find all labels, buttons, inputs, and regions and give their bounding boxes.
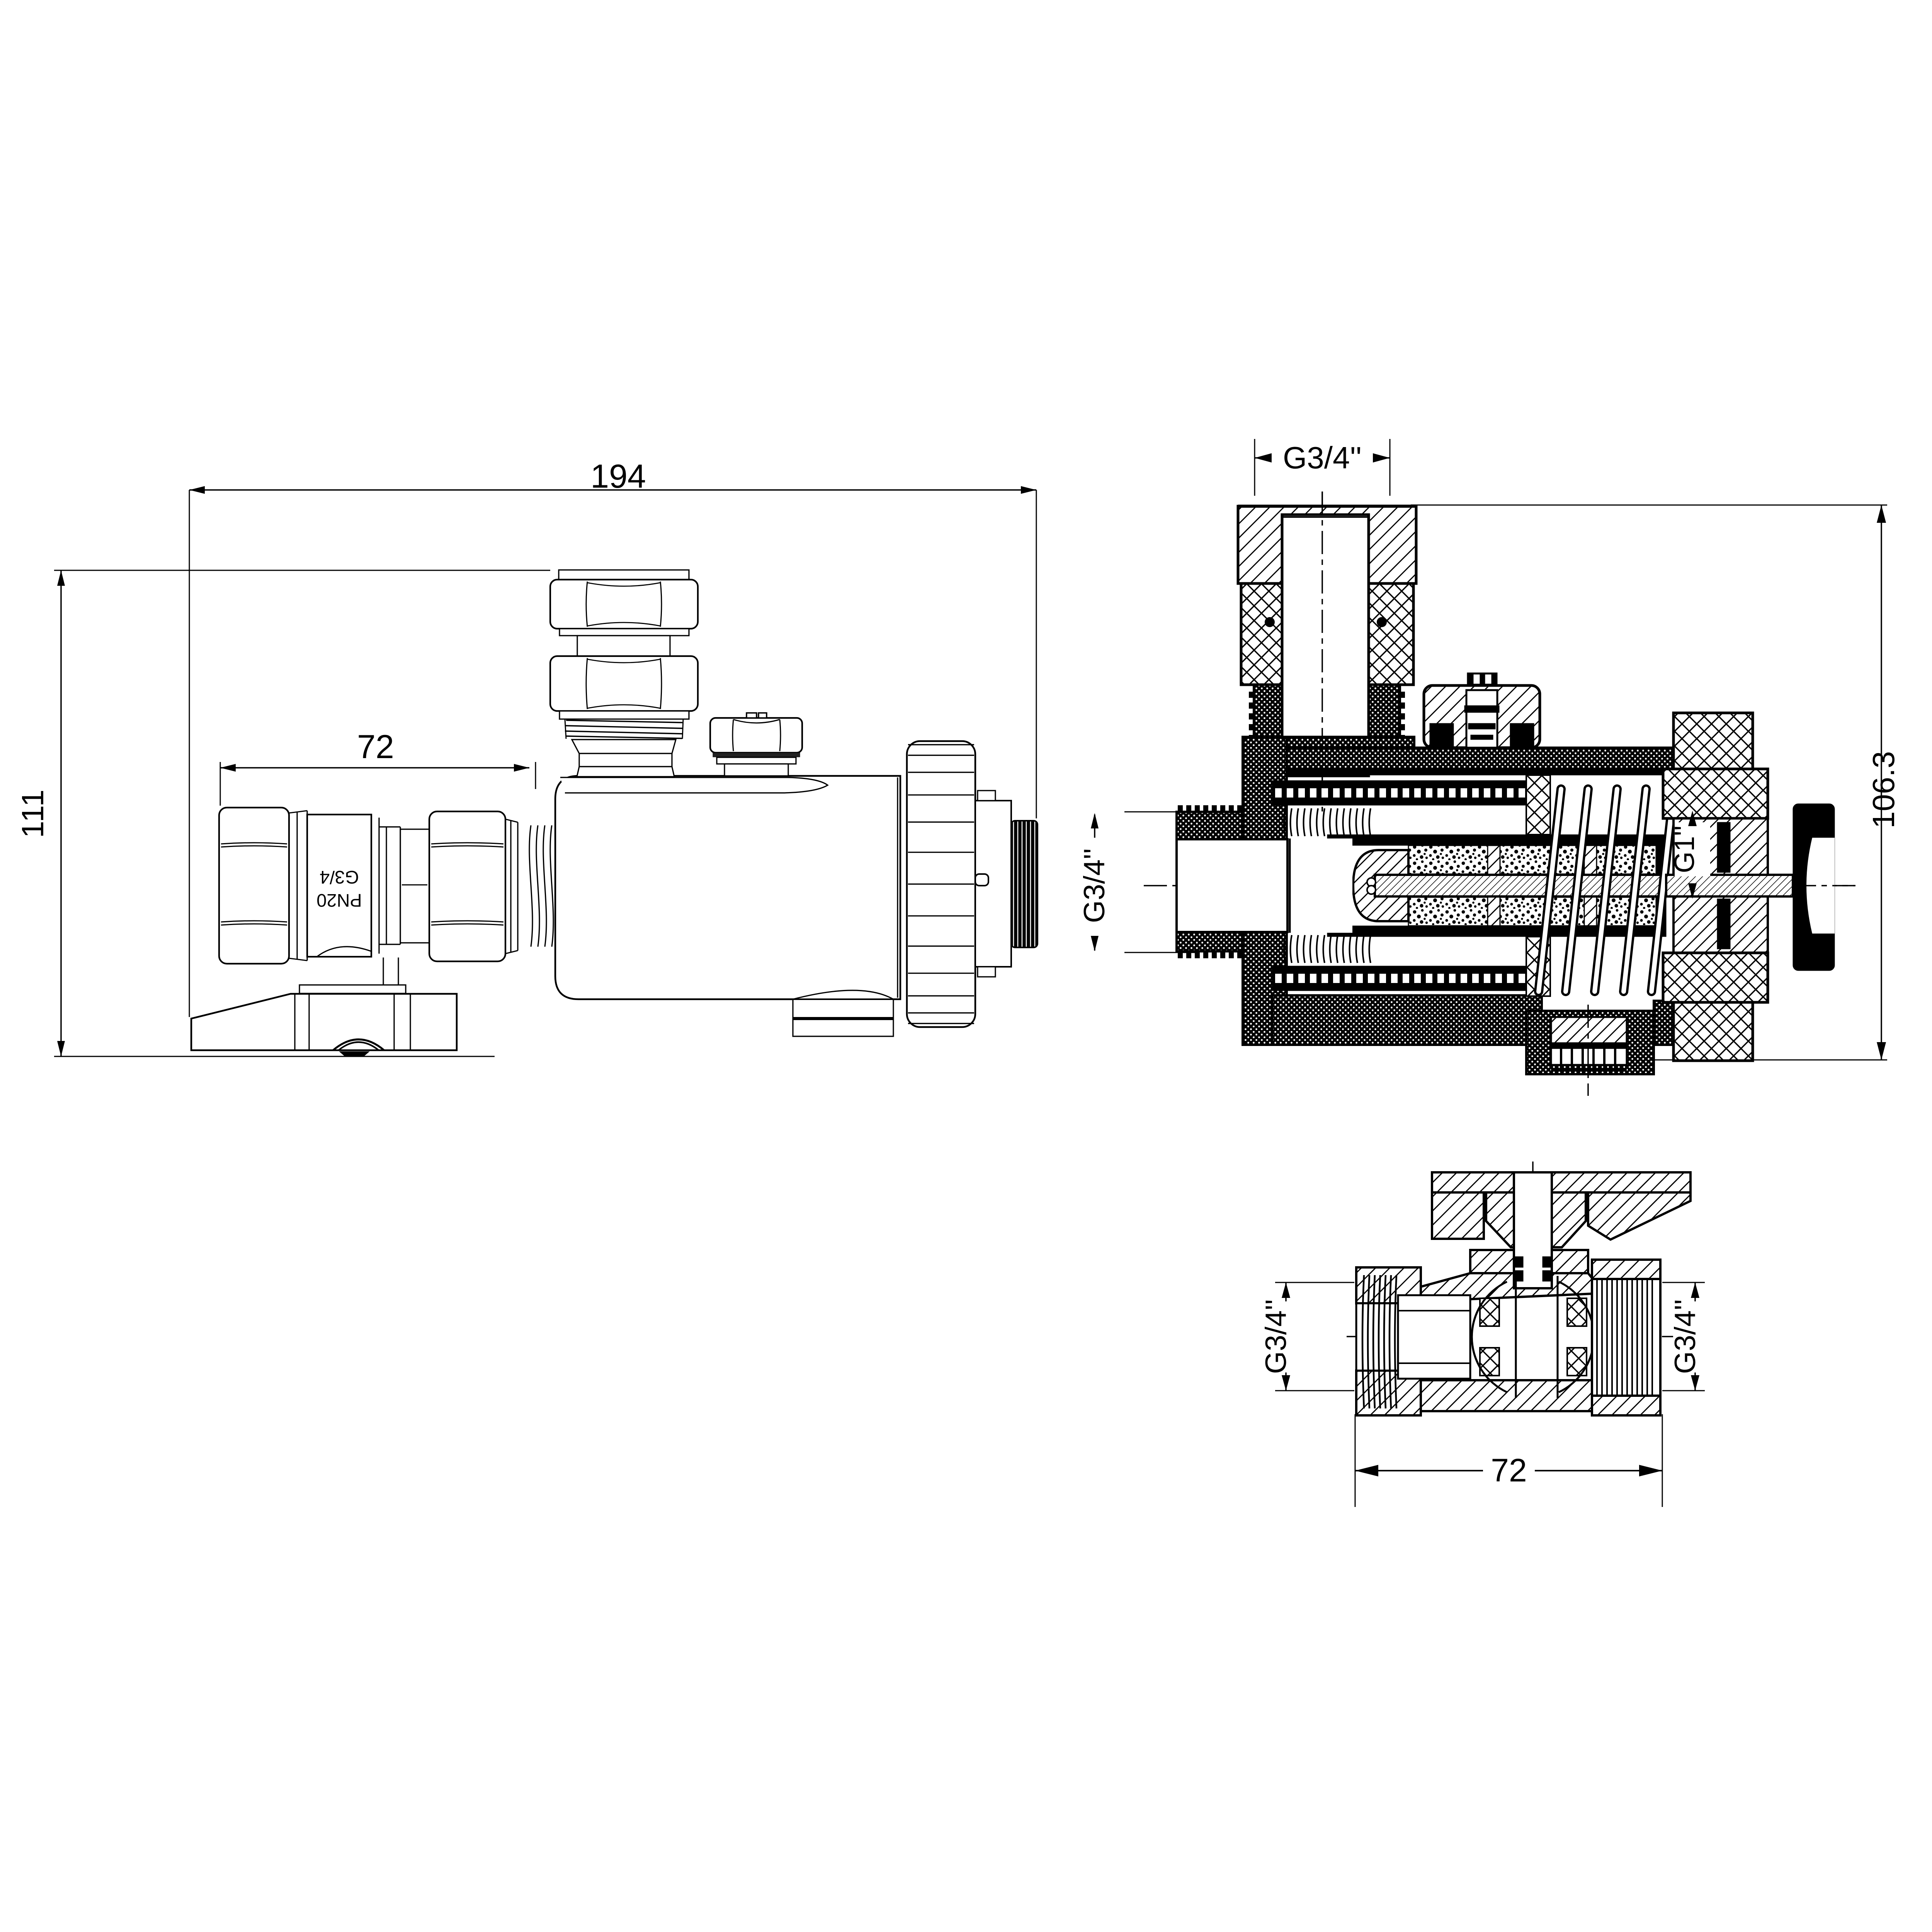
svg-text:G1'': G1'': [1669, 825, 1700, 873]
svg-text:194: 194: [590, 458, 646, 495]
svg-text:72: 72: [1491, 1452, 1527, 1488]
svg-text:111: 111: [15, 789, 50, 838]
svg-text:G3/4'': G3/4'': [1283, 440, 1362, 475]
svg-text:72: 72: [357, 728, 394, 765]
svg-text:G3/4'': G3/4'': [1669, 1299, 1702, 1374]
svg-text:G3/4'': G3/4'': [1078, 848, 1111, 923]
svg-text:G3/4'': G3/4'': [1260, 1299, 1293, 1374]
svg-text:G3/4: G3/4: [320, 867, 359, 888]
svg-text:PN20: PN20: [316, 890, 362, 911]
svg-text:106.3: 106.3: [1866, 751, 1901, 828]
